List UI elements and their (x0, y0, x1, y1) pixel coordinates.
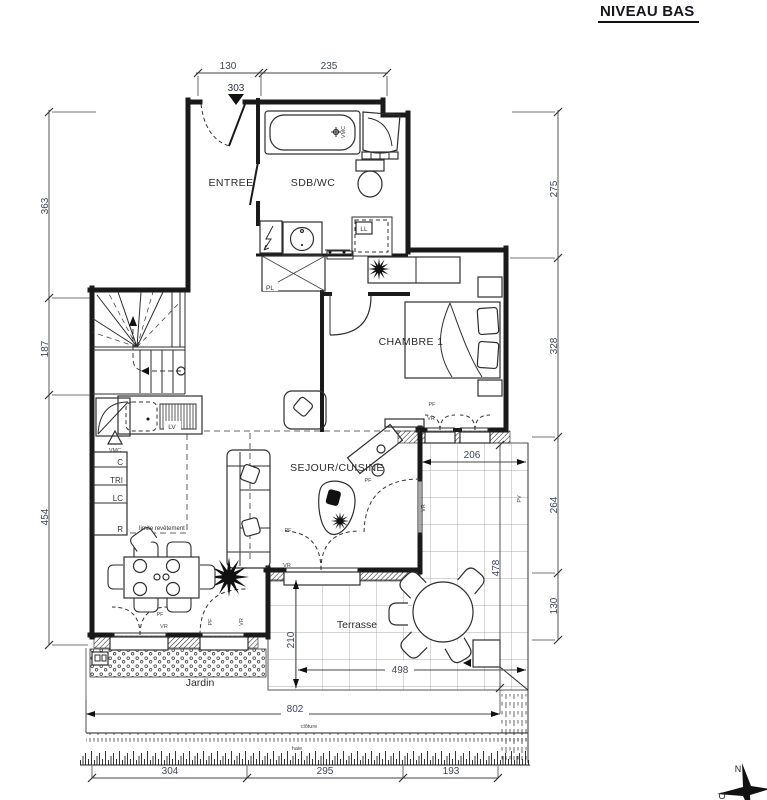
pf-label: PF (156, 612, 164, 618)
pf-label: PF (208, 618, 214, 626)
dim-130-top: 130 (220, 61, 237, 72)
dim-454-left: 454 (40, 508, 51, 525)
pf-label: PF (364, 478, 372, 484)
cabinet-label-c: C (117, 458, 123, 467)
wc-bowl (358, 171, 382, 197)
room-label-sejour: SEJOUR/CUISINE (290, 462, 384, 474)
bedroom-furniture (385, 277, 502, 427)
dining-table (124, 557, 199, 598)
dim-295-bottom: 295 (317, 766, 334, 777)
closet-label: PL (266, 285, 274, 292)
stair-up-arrow (129, 316, 137, 326)
room-label-terrasse: Terrasse (337, 619, 377, 631)
staircase (92, 292, 185, 394)
room-label-sdb-wc: SDB/WC (291, 177, 335, 189)
dining-set (108, 526, 215, 612)
dimension-left (45, 108, 96, 649)
dim-328-right: 328 (549, 337, 560, 354)
dim-264-right: 264 (549, 496, 560, 513)
cloture-label: clôture (301, 724, 318, 730)
dim-206-terrace: 206 (464, 450, 481, 461)
entry-marker-arrow (228, 94, 244, 105)
dim-363-left: 363 (40, 197, 51, 214)
kitchen (96, 396, 202, 444)
nightstand (478, 277, 502, 297)
cabinet-label-lc: LC (113, 494, 123, 503)
dim-235-top: 235 (321, 61, 338, 72)
room-label-jardin: Jardin (186, 677, 215, 689)
dim-478-terrace: 478 (491, 559, 502, 576)
dim-187-left: 187 (40, 340, 51, 357)
vr-label: VR (283, 563, 291, 569)
garden-gravel-band (86, 648, 266, 733)
compass-north-label: N (735, 764, 742, 774)
pf-label: PF (428, 402, 436, 408)
haie-label: haie (292, 746, 302, 752)
dim-275-right: 275 (549, 180, 560, 197)
living-furniture (209, 391, 402, 597)
vr-label: VR (239, 618, 245, 626)
dim-210-terrace: 210 (286, 631, 297, 648)
dim-304-bottom: 304 (162, 766, 179, 777)
pf-label: PF (284, 528, 292, 534)
terrace-table (413, 582, 473, 642)
dim-193-bottom: 193 (443, 766, 460, 777)
vr-label: VR (421, 504, 427, 512)
cushion (241, 517, 261, 537)
nightstand (478, 380, 502, 396)
plant-icon (368, 258, 390, 280)
kitchen-sink (126, 402, 157, 431)
dim-498-terrace: 498 (392, 665, 409, 676)
dishwasher-label: LV (168, 424, 176, 431)
cabinet-label-r: R (117, 525, 123, 534)
pillow (477, 341, 499, 368)
vmc-label-bath: VMC (341, 126, 347, 138)
washing-machine-label: LL (360, 226, 368, 233)
electrical-panel (260, 221, 282, 253)
room-label-chambre: CHAMBRE 1 (379, 336, 444, 348)
vmc-label-kitchen: VMC (109, 448, 121, 454)
floor-plan-page: NIVEAU BAS (0, 0, 767, 800)
pv-label: PV (517, 495, 523, 503)
vr-label: VR (160, 624, 168, 630)
stool (325, 489, 341, 507)
duvet-fold (441, 303, 483, 377)
compass-west-label: O (718, 791, 725, 800)
limit-lines (130, 431, 420, 560)
garden-hedge (80, 748, 530, 765)
dim-130-right: 130 (549, 597, 560, 614)
floor-plan-drawing: ENTREE SDB/WC CHAMBRE 1 SEJOUR/CUISINE T… (0, 0, 767, 800)
pillow (477, 307, 499, 334)
room-label-entree: ENTREE (209, 177, 254, 189)
vmc-icon (108, 431, 122, 444)
limite-revetement-label: limite revêtement (139, 526, 185, 532)
vr-label: VR (427, 416, 435, 422)
cushion (240, 464, 261, 485)
planter (473, 640, 500, 667)
cabinet-label-tri: TRI (110, 476, 123, 485)
dim-303-entry: 303 (228, 83, 245, 94)
wc-tank (356, 160, 384, 171)
dim-802-garden: 802 (287, 704, 304, 715)
